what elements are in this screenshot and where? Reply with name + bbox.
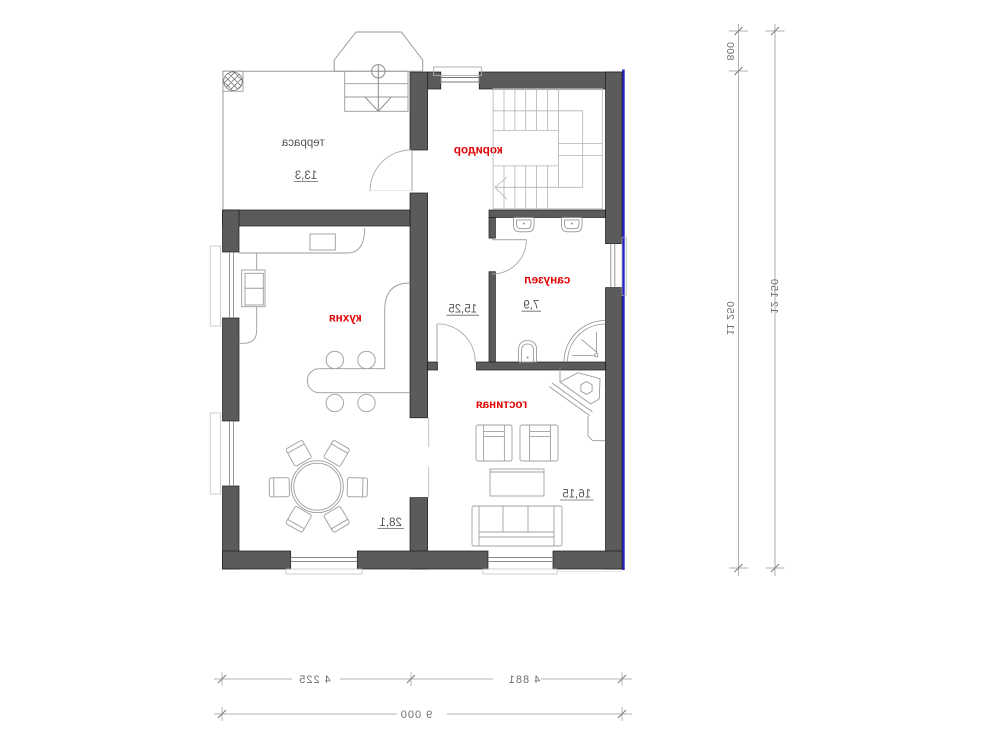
svg-text:7,9: 7,9 <box>523 300 539 312</box>
svg-text:кухня: кухня <box>329 311 362 324</box>
svg-text:гостиная: гостиная <box>476 398 528 411</box>
svg-text:11 250: 11 250 <box>724 301 736 335</box>
svg-text:коридор: коридор <box>454 143 503 156</box>
svg-text:терраса: терраса <box>281 137 324 149</box>
svg-text:16,15: 16,15 <box>562 489 591 501</box>
svg-text:4 881: 4 881 <box>508 674 541 686</box>
svg-text:9 000: 9 000 <box>400 709 433 721</box>
svg-text:28,1: 28,1 <box>380 517 402 529</box>
svg-text:13,3: 13,3 <box>295 170 317 182</box>
svg-text:4 225: 4 225 <box>298 674 331 686</box>
svg-text:санузел: санузел <box>524 273 570 286</box>
svg-text:12 150: 12 150 <box>768 278 780 313</box>
svg-text:800: 800 <box>724 41 736 60</box>
svg-text:15,25: 15,25 <box>448 304 477 316</box>
